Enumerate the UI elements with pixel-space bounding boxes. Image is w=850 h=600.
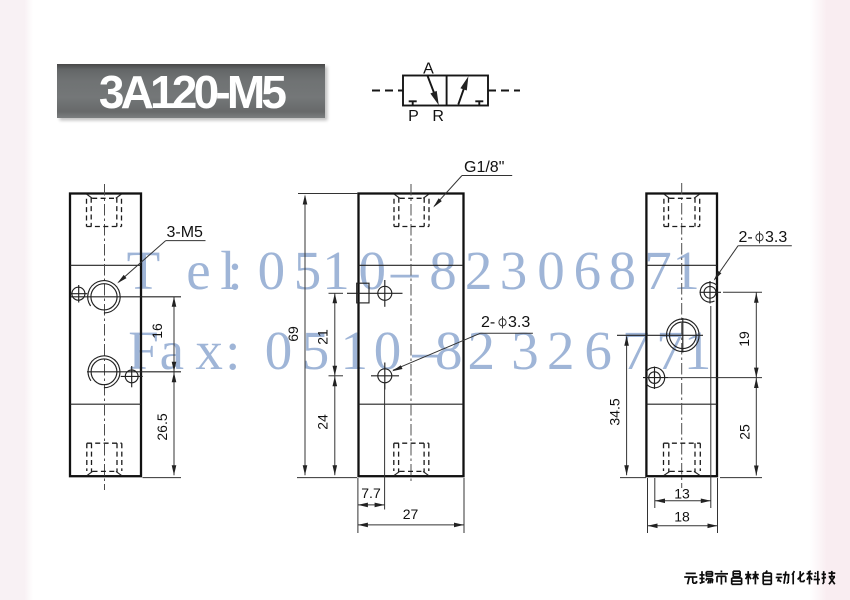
svg-text:24: 24 bbox=[315, 414, 331, 430]
svg-text:16: 16 bbox=[149, 323, 165, 339]
svg-text:2-: 2- bbox=[481, 314, 495, 331]
svg-text:P: P bbox=[408, 108, 419, 125]
svg-text:18: 18 bbox=[674, 509, 690, 525]
svg-text:2-: 2- bbox=[739, 229, 753, 246]
svg-text:34.5: 34.5 bbox=[607, 398, 623, 425]
svg-text:27: 27 bbox=[403, 506, 419, 522]
svg-text:R: R bbox=[432, 108, 444, 125]
svg-text:3.3: 3.3 bbox=[765, 229, 787, 246]
svg-text:19: 19 bbox=[736, 331, 752, 347]
svg-text:7.7: 7.7 bbox=[361, 485, 381, 501]
svg-text:3.3: 3.3 bbox=[508, 314, 530, 331]
svg-text:G1/8": G1/8" bbox=[464, 159, 504, 176]
svg-text:69: 69 bbox=[285, 326, 301, 342]
svg-text:3-M5: 3-M5 bbox=[167, 224, 204, 241]
svg-text:26.5: 26.5 bbox=[154, 413, 170, 440]
svg-text:13: 13 bbox=[674, 486, 690, 502]
svg-text:25: 25 bbox=[737, 424, 753, 440]
svg-text:A: A bbox=[423, 61, 434, 78]
svg-text:21: 21 bbox=[315, 329, 331, 345]
